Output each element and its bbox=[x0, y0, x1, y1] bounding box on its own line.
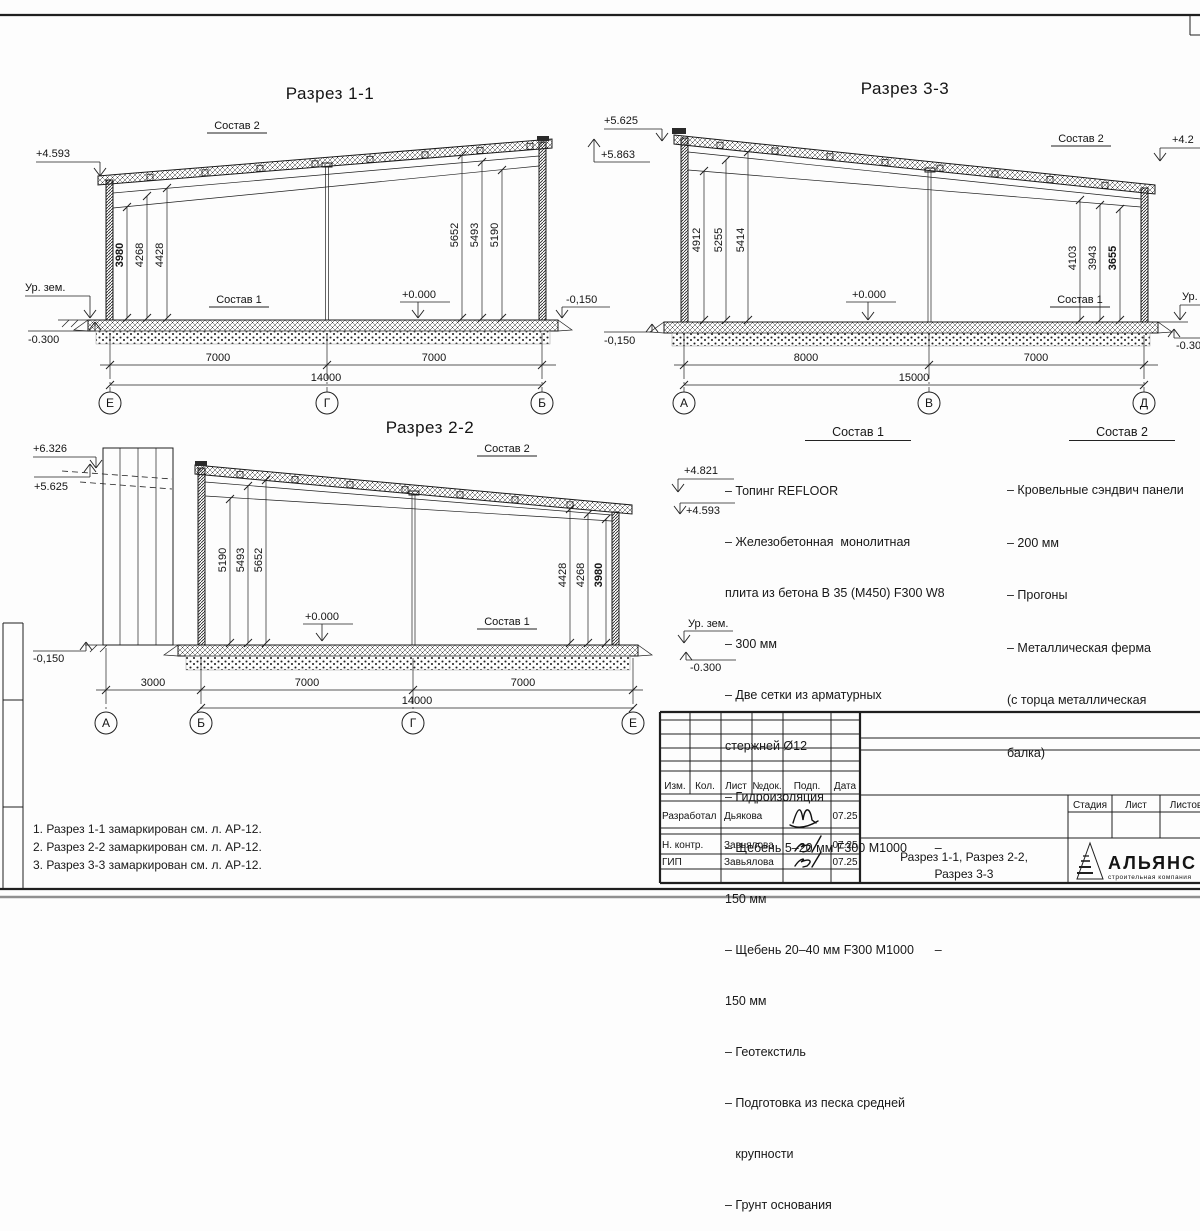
elevation-mark: +4.593 bbox=[686, 505, 720, 517]
elevation-flag bbox=[80, 642, 86, 650]
span-dim: 7000 bbox=[1024, 352, 1048, 364]
elevation-flag bbox=[100, 168, 106, 176]
elevation-flag bbox=[322, 633, 328, 641]
elevation-flag bbox=[684, 635, 690, 643]
dim-label: 4103 bbox=[1067, 246, 1079, 270]
dim-label: 5652 bbox=[449, 223, 461, 247]
dim-label: 4912 bbox=[691, 228, 703, 252]
tb-stage-header: Листов bbox=[1170, 800, 1200, 811]
elevation-flag bbox=[674, 506, 680, 514]
list-item: (с торца металлическая bbox=[1007, 692, 1184, 710]
list-item: – Гидроизоляция bbox=[725, 789, 945, 806]
ground-level-label: Ур. зем. bbox=[1182, 291, 1200, 303]
list-item: – Подготовка из песка средней bbox=[725, 1095, 945, 1112]
elevation-flag bbox=[412, 310, 418, 318]
list-item: плита из бетона В 35 (М450) F300 W8 bbox=[725, 585, 945, 602]
section-2-2-title: Разрез 2-2 bbox=[386, 418, 474, 437]
list-item: – Прогоны bbox=[1007, 587, 1184, 605]
elevation-mark: -0,150 bbox=[604, 335, 635, 347]
span-dim: 7000 bbox=[206, 352, 230, 364]
tb-role: ГИП bbox=[662, 857, 682, 868]
alliance-logo-name: АЛЬЯНС bbox=[1108, 853, 1197, 873]
axis-letter: В bbox=[925, 396, 933, 410]
axis-letter: Б bbox=[197, 716, 205, 730]
elevation-flag bbox=[86, 642, 92, 650]
section-2-2: Разрез 2-2 Состав 2 Состав 1 +6.326 +5.6… bbox=[33, 418, 728, 734]
elevation-flag bbox=[556, 310, 562, 318]
elevation-flag bbox=[686, 652, 692, 660]
elevation-flag bbox=[662, 133, 668, 141]
dim-label: 3943 bbox=[1087, 246, 1099, 270]
elevation-flag bbox=[862, 312, 868, 320]
elevation-mark: +5.625 bbox=[34, 481, 68, 493]
elevation-flag bbox=[316, 633, 322, 641]
elevation-mark: -0.300 bbox=[690, 662, 721, 674]
note-line: 1. Разрез 1-1 замаркирован см. л. АР-12. bbox=[33, 820, 262, 838]
axis-letter: Е bbox=[629, 716, 637, 730]
elevation-mark: -0,150 bbox=[566, 294, 597, 306]
ground-level-label: Ур. зем. bbox=[688, 618, 728, 630]
list-item: 150 мм bbox=[725, 993, 945, 1010]
span-dim: 7000 bbox=[422, 352, 446, 364]
elevation-flag bbox=[594, 139, 600, 147]
sheet-notes: 1. Разрез 1-1 замаркирован см. л. АР-12.… bbox=[33, 820, 262, 874]
sostav1-list: – Топинг REFLOOR – Железобетонная моноли… bbox=[725, 449, 945, 1231]
dim-label: 5493 bbox=[469, 223, 481, 247]
dim-label: 4428 bbox=[154, 243, 166, 267]
list-item: крупности bbox=[725, 1146, 945, 1163]
elevation-mark: -0.300 bbox=[1176, 340, 1200, 352]
sostav2-label: Состав 2 bbox=[484, 443, 530, 455]
elevation-flag bbox=[90, 310, 96, 318]
axis-letter: А bbox=[102, 716, 110, 730]
elevation-flag bbox=[680, 652, 686, 660]
axis-letter: Г bbox=[324, 396, 331, 410]
dim-label: 5414 bbox=[735, 228, 747, 252]
elevation-mark: +4.593 bbox=[36, 148, 70, 160]
elevation-flag bbox=[652, 324, 658, 332]
sostav2-label: Состав 2 bbox=[1058, 133, 1104, 145]
sostav1-label: Состав 1 bbox=[216, 294, 262, 306]
total-dim: 15000 bbox=[899, 372, 930, 384]
elevation-flag bbox=[1154, 153, 1160, 161]
sostav2-label: Состав 2 bbox=[214, 120, 260, 132]
dim-label: 4268 bbox=[134, 243, 146, 267]
sostav2-list: – Кровельные сэндвич панели – 200 мм – П… bbox=[1007, 447, 1184, 780]
dim-label: 5255 bbox=[713, 228, 725, 252]
tb-col-header: Изм. bbox=[664, 781, 685, 792]
list-item: – Щебень 20–40 мм F300 М1000 – bbox=[725, 942, 945, 959]
tb-role: Н. контр. bbox=[662, 840, 703, 851]
tb-stage-header: Стадия bbox=[1073, 800, 1107, 811]
note-line: 3. Разрез 3-3 замаркирован см. л. АР-12. bbox=[33, 856, 262, 874]
tb-col-header: Кол. bbox=[695, 781, 715, 792]
elevation-flag bbox=[96, 460, 102, 468]
elevation-mark: -0.300 bbox=[28, 334, 59, 346]
sostav1-label: Состав 1 bbox=[484, 616, 530, 628]
total-dim: 14000 bbox=[402, 695, 433, 707]
ground-level-label: Ур. зем. bbox=[25, 282, 65, 294]
zero-level-label: +0.000 bbox=[852, 289, 886, 301]
section-3-3: Разрез 3-3 Состав 2 Состав 1 +5.625 +5.8… bbox=[601, 79, 1200, 414]
elevation-flag bbox=[656, 133, 662, 141]
elevation-flag bbox=[418, 310, 424, 318]
dim-label: 5190 bbox=[489, 223, 501, 247]
tb-role: Разработал bbox=[662, 810, 717, 822]
zero-level-label: +0.000 bbox=[402, 289, 436, 301]
axis-letter: Е bbox=[106, 396, 114, 410]
list-item: – 300 мм bbox=[725, 636, 945, 653]
list-item: – Металлическая ферма bbox=[1007, 640, 1184, 658]
span-dim: 3000 bbox=[141, 677, 165, 689]
sostav2-list-title: Состав 2 bbox=[1069, 425, 1175, 441]
section-3-3-title: Разрез 3-3 bbox=[861, 79, 949, 98]
list-item: стержней Ø12 bbox=[725, 738, 945, 755]
drawing-sheet: { "labels": {"sostav1": "Состав 1", "sos… bbox=[0, 0, 1200, 900]
elevation-flag bbox=[1160, 153, 1166, 161]
axis-letter: Б bbox=[538, 396, 546, 410]
dim-label: 4428 bbox=[557, 563, 569, 587]
elevation-flag bbox=[678, 484, 684, 492]
elevation-flag bbox=[678, 635, 684, 643]
elevation-flag bbox=[84, 464, 90, 472]
elevation-mark: +4.2 bbox=[1172, 134, 1194, 146]
dim-label: 5652 bbox=[253, 548, 265, 572]
elevation-flag bbox=[94, 168, 100, 176]
span-dim: 7000 bbox=[511, 677, 535, 689]
dim-label: 3980 bbox=[114, 243, 126, 267]
list-item: – Две сетки из арматурных bbox=[725, 687, 945, 704]
elevation-mark: +6.326 bbox=[33, 443, 67, 455]
axis-letter: А bbox=[680, 396, 688, 410]
list-item: – Железобетонная монолитная bbox=[725, 534, 945, 551]
dim-label: 5493 bbox=[235, 548, 247, 572]
elevation-flag bbox=[1180, 312, 1186, 320]
alliance-logo-tagline: строительная компания bbox=[1108, 874, 1192, 881]
list-item: – Геотекстиль bbox=[725, 1044, 945, 1061]
dim-label: 4268 bbox=[575, 563, 587, 587]
section-1-1-title: Разрез 1-1 bbox=[286, 84, 374, 103]
elevation-flag bbox=[868, 312, 874, 320]
list-item: – Щебень 5–20 мм F300 М1000 – bbox=[725, 840, 945, 857]
span-dim: 8000 bbox=[794, 352, 818, 364]
sostav1-list-title: Состав 1 bbox=[805, 425, 911, 441]
elevation-mark: +4.821 bbox=[684, 465, 718, 477]
tb-stage-header: Лист bbox=[1125, 800, 1147, 811]
list-item: – Грунт основания bbox=[725, 1197, 945, 1214]
alliance-logo-icon bbox=[1077, 843, 1103, 879]
elevation-mark: +5.625 bbox=[604, 115, 638, 127]
elevation-mark: +5.863 bbox=[601, 149, 635, 161]
axis-letter: Д bbox=[1140, 396, 1148, 410]
elevation-flag bbox=[1174, 329, 1180, 337]
dim-label: 5190 bbox=[217, 548, 229, 572]
dim-label: 3980 bbox=[593, 563, 605, 587]
span-dim: 7000 bbox=[295, 677, 319, 689]
zero-level-label: +0.000 bbox=[305, 611, 339, 623]
elevation-flag bbox=[90, 460, 96, 468]
dim-label: 3655 bbox=[1107, 246, 1119, 270]
axis-letter: Г bbox=[410, 716, 417, 730]
elevation-flag bbox=[84, 310, 90, 318]
note-line: 2. Разрез 2-2 замаркирован см. л. АР-12. bbox=[33, 838, 262, 856]
list-item: – 200 мм bbox=[1007, 535, 1184, 553]
list-item: балка) bbox=[1007, 745, 1184, 763]
elevation-flag bbox=[588, 139, 594, 147]
total-dim: 14000 bbox=[311, 372, 342, 384]
elevation-mark: -0,150 bbox=[33, 653, 64, 665]
elevation-flag bbox=[90, 464, 96, 472]
elevation-flag bbox=[562, 310, 568, 318]
list-item: – Кровельные сэндвич панели bbox=[1007, 482, 1184, 500]
elevation-flag bbox=[672, 484, 678, 492]
list-item: – Топинг REFLOOR bbox=[725, 483, 945, 500]
elevation-flag bbox=[1174, 312, 1180, 320]
